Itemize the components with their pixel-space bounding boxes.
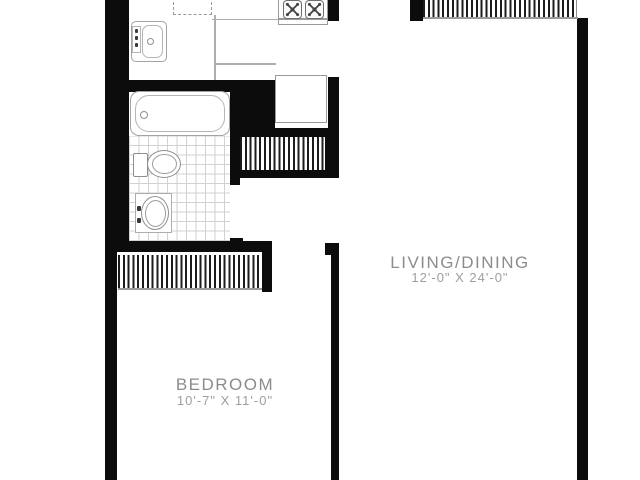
counter-edge-vertical	[214, 15, 216, 80]
wall-right-exterior	[577, 18, 588, 480]
wall-left-upper	[105, 0, 129, 252]
floor-plan: LIVING/DINING 12'-0" X 24'-0" BEDROOM 10…	[0, 0, 640, 480]
wall-entry-piece	[410, 0, 423, 21]
wall-kitchen-right-mid	[328, 77, 339, 178]
closet-top-right-edge	[423, 17, 578, 19]
closet-bedroom-edge	[118, 288, 262, 290]
counter-edge-bottom	[214, 63, 276, 65]
toilet-bowl-inner	[152, 154, 177, 174]
bath-faucet-dot-2	[137, 218, 141, 223]
living-dining-label: LIVING/DINING	[379, 254, 541, 271]
refrigerator	[275, 75, 327, 123]
closet-hatched-bedroom	[118, 255, 262, 288]
wall-bath-right	[230, 80, 240, 185]
wall-bedroom-closet-right	[262, 252, 272, 292]
bathtub-inner	[135, 95, 225, 132]
closet-hatched-hall	[240, 137, 325, 170]
burner-flame-icon	[306, 1, 323, 18]
stove-burner-right	[305, 0, 324, 19]
upper-cabinet-dashed	[173, 0, 212, 15]
burner-flame-icon	[284, 1, 301, 18]
wall-bedroom-top	[105, 241, 272, 252]
closet-hatched-top-right	[423, 0, 577, 17]
wall-bedroom-living-divider	[331, 243, 339, 480]
wall-kitchen-right-top	[328, 0, 339, 21]
bathtub-drain	[140, 111, 148, 119]
wall-left-lower	[105, 252, 117, 480]
counter-edge-top	[212, 19, 278, 21]
pedestal-sink-inner	[145, 200, 166, 227]
toilet-tank	[133, 153, 148, 177]
bath-faucet-dot-1	[137, 206, 141, 211]
sink-faucet-dot-1	[135, 29, 138, 33]
bedroom-dimensions: 10'-7" X 11'-0"	[144, 394, 306, 407]
living-dining-dimensions: 12'-0" X 24'-0"	[379, 271, 541, 284]
bedroom-label: BEDROOM	[144, 376, 306, 393]
sink-faucet-dot-3	[135, 43, 138, 47]
stove-burner-left	[283, 0, 302, 19]
sink-faucet-dot-2	[135, 36, 138, 40]
kitchen-sink-drain	[147, 38, 154, 45]
